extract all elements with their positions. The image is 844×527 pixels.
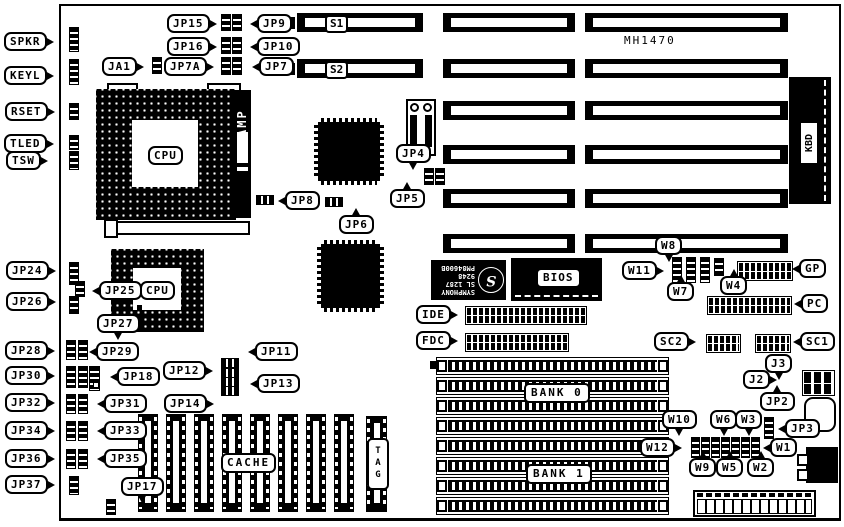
zif-slider: [237, 132, 248, 163]
jp32-callout: JP32: [5, 393, 48, 412]
w1-callout: W1: [770, 438, 797, 457]
jp3-jumper: [764, 417, 774, 439]
jp10-callout: JP10: [257, 37, 300, 56]
jp15-callout: JP15: [167, 14, 210, 33]
w4-jumper: [714, 258, 724, 276]
jp16-callout: JP16: [167, 37, 210, 56]
keylock-header: [69, 59, 79, 85]
tag-label: TAG: [373, 446, 383, 482]
jp9-callout: JP9: [257, 14, 292, 33]
jp4-jumper: [424, 168, 434, 185]
zif-slider-notch: [237, 167, 248, 171]
fdc-callout: FDC: [416, 331, 451, 350]
bracket-hole-right: [423, 103, 432, 112]
jp9-jumper: [232, 14, 242, 31]
slot1-short-segment: [443, 13, 575, 32]
slot3-short-segment: [443, 101, 575, 120]
jp31-callout: JP31: [104, 394, 147, 413]
jp33-callout: JP33: [104, 421, 147, 440]
kbd-dash-line: [824, 80, 826, 201]
power-tabs-row: [697, 493, 812, 497]
jp36-header: [66, 449, 76, 469]
jp6-jumper: [325, 197, 343, 207]
jp26-header: [69, 296, 79, 314]
jp33-header: [78, 421, 88, 441]
spkr-callout: SPKR: [4, 32, 47, 51]
slot6-short-segment: [443, 234, 575, 253]
reset-header: [69, 103, 79, 120]
tag-label-box: TAG: [367, 438, 389, 490]
jp7-callout: JP7: [259, 57, 294, 76]
jp10-jumper: [232, 37, 242, 54]
jp15-jumper: [221, 14, 231, 31]
cache-label: CACHE: [221, 453, 276, 473]
jp34-callout: JP34: [5, 421, 48, 440]
jp11-callout: JP11: [255, 342, 298, 361]
bios-label: BIOS: [536, 268, 581, 288]
slot1-long-segment: [585, 13, 788, 32]
jp7a-jumper: [221, 57, 231, 75]
jp37-callout: JP37: [5, 475, 48, 494]
jp14-callout: JP14: [164, 394, 207, 413]
jp29-header: [78, 366, 88, 388]
w6-callout: W6: [710, 410, 737, 429]
jp36-callout: JP36: [5, 449, 48, 468]
w9-callout: W9: [689, 458, 716, 477]
turbo-led-header: [69, 135, 79, 150]
jp27-callout: JP27: [97, 314, 140, 333]
j2-j3-jp2-header: [802, 370, 835, 396]
cache-chip-6: [278, 414, 298, 512]
slot4-long-segment: [585, 145, 788, 164]
w10-callout: W10: [662, 410, 697, 429]
slot5-long-segment: [585, 189, 788, 208]
simm-socket-8: [436, 497, 669, 515]
jp29-callout: JP29: [96, 342, 139, 361]
ide-header: [465, 306, 587, 325]
jp8-jumper: [256, 195, 274, 205]
jp37-header: [69, 476, 79, 495]
jp17-callout: JP17: [121, 477, 164, 496]
slot2-long-segment: [585, 59, 788, 78]
symphony-chip: S SYMPHONY SL 1287 9248 PM84600B: [431, 260, 506, 300]
j3-callout: J3: [765, 354, 792, 373]
simm-socket-1: [436, 357, 669, 375]
sc2-callout: SC2: [654, 332, 689, 351]
w2-callout: W2: [747, 458, 774, 477]
ide-callout: IDE: [416, 305, 451, 324]
cache-chip-7: [306, 414, 326, 512]
jp28-callout: JP28: [5, 341, 48, 360]
fdc-header: [465, 333, 569, 352]
chip-part: SL 1287: [441, 280, 475, 288]
jp3-callout: JP3: [785, 419, 820, 438]
w8-jumper: [686, 257, 696, 283]
jp32-header: [66, 394, 76, 414]
power-pins-row: [697, 499, 812, 514]
ja1-callout: JA1: [102, 57, 137, 76]
jp6-callout: JP6: [339, 215, 374, 234]
jp8-callout: JP8: [285, 191, 320, 210]
turbo-switch-header: [69, 151, 79, 170]
bank0-label: BANK 0: [524, 383, 590, 403]
pin1-marker: [137, 305, 142, 310]
jp4-callout: JP4: [396, 144, 431, 163]
jp30-header: [66, 366, 76, 388]
w9-jumper: [711, 437, 720, 458]
slot-s2-label: S2: [325, 61, 348, 79]
j2-callout: J2: [743, 370, 770, 389]
upgrade-cpu-label: CPU: [140, 281, 175, 300]
chipset-qfp-1: [314, 118, 384, 185]
jp24-callout: JP24: [6, 261, 49, 280]
power-pin-tab-1: [797, 454, 809, 466]
bracket-hole-left: [410, 103, 419, 112]
keyl-callout: KEYL: [4, 66, 47, 85]
zif-lever-hook: [104, 219, 118, 238]
chip-datecode: 9248: [441, 272, 475, 280]
jp35-callout: JP35: [104, 449, 147, 468]
sc1-callout: SC1: [800, 332, 835, 351]
bracket-bar-right: [425, 115, 432, 147]
jp26-callout: JP26: [6, 292, 49, 311]
jp5-jumper: [435, 168, 445, 185]
w7-callout: W7: [667, 282, 694, 301]
jp35-header: [78, 449, 88, 469]
pc-header: [707, 296, 792, 315]
w11-callout: W11: [622, 261, 657, 280]
cache-chip-3: [194, 414, 214, 512]
simm-socket-5: [436, 437, 669, 455]
jp17-jumper: [106, 499, 116, 515]
speaker-header: [69, 27, 79, 52]
jp16-jumper: [221, 37, 231, 54]
jp25-callout: JP25: [99, 281, 142, 300]
jp27-header: [78, 340, 88, 360]
kbd-label-box: KBD: [800, 122, 818, 164]
zif-lever: [113, 221, 250, 235]
cache-chip-8: [334, 414, 354, 512]
chip-brand: SYMPHONY: [441, 288, 475, 296]
jp30-callout: JP30: [5, 366, 48, 385]
w5-callout: W5: [716, 458, 743, 477]
simm-socket-4: [436, 417, 669, 435]
chip-lot: PM84600B: [441, 264, 475, 272]
cpu-label: CPU: [148, 146, 183, 165]
jp12-callout: JP12: [163, 361, 206, 380]
slot1-vlb-segment: [297, 13, 423, 32]
jp2-callout: JP2: [760, 392, 795, 411]
motherboard-diagram: MH1470 S1 S2 CPU AMP CPU: [0, 0, 844, 527]
jp18-callout: JP18: [117, 367, 160, 386]
pc-callout: PC: [801, 294, 828, 313]
tsw-callout: TSW: [6, 151, 41, 170]
jp34-header: [66, 421, 76, 441]
w4-callout: W4: [720, 276, 747, 295]
chipset-qfp-2: [317, 240, 384, 312]
jp31-header: [78, 394, 88, 414]
jp7-jumper: [232, 57, 242, 75]
bracket-bar-left: [410, 115, 417, 147]
power-pin-tab-2: [797, 469, 809, 481]
bios-chip-notch-line: [515, 295, 598, 297]
jp13-callout: JP13: [257, 374, 300, 393]
jp25-header: [75, 281, 85, 297]
slot-s1-label: S1: [325, 15, 348, 33]
cache-chip-2: [166, 414, 186, 512]
w3-callout: W3: [735, 410, 762, 429]
bank1-label: BANK 1: [526, 464, 592, 484]
ja1-jumper: [152, 57, 162, 74]
jp11-jumper: [221, 358, 239, 368]
w8-callout: W8: [655, 236, 682, 255]
board-model-text: MH1470: [624, 34, 676, 47]
gp-callout: GP: [799, 259, 826, 278]
jp7a-callout: JP7A: [164, 57, 207, 76]
w3-jumper: [741, 437, 750, 458]
w7-jumper: [700, 257, 710, 283]
at-power-connector: [693, 490, 816, 517]
jp14-jumper: [221, 386, 239, 396]
slot2-vlb-segment: [297, 59, 423, 78]
jp5-callout: JP5: [390, 189, 425, 208]
w12-callout: W12: [640, 438, 675, 457]
slot4-short-segment: [443, 145, 575, 164]
power-inlet-block: [806, 447, 838, 483]
slot5-short-segment: [443, 189, 575, 208]
sc1-header: [755, 334, 791, 353]
slot6-long-segment: [585, 234, 788, 253]
slot3-long-segment: [585, 101, 788, 120]
jp18-key-pad: [93, 382, 99, 388]
rset-callout: RSET: [5, 102, 48, 121]
symphony-globe-logo: S: [478, 267, 504, 293]
slot2-short-segment: [443, 59, 575, 78]
jp28-header: [66, 340, 76, 360]
kbd-label: KBD: [804, 134, 815, 152]
sc2-header: [706, 334, 741, 353]
